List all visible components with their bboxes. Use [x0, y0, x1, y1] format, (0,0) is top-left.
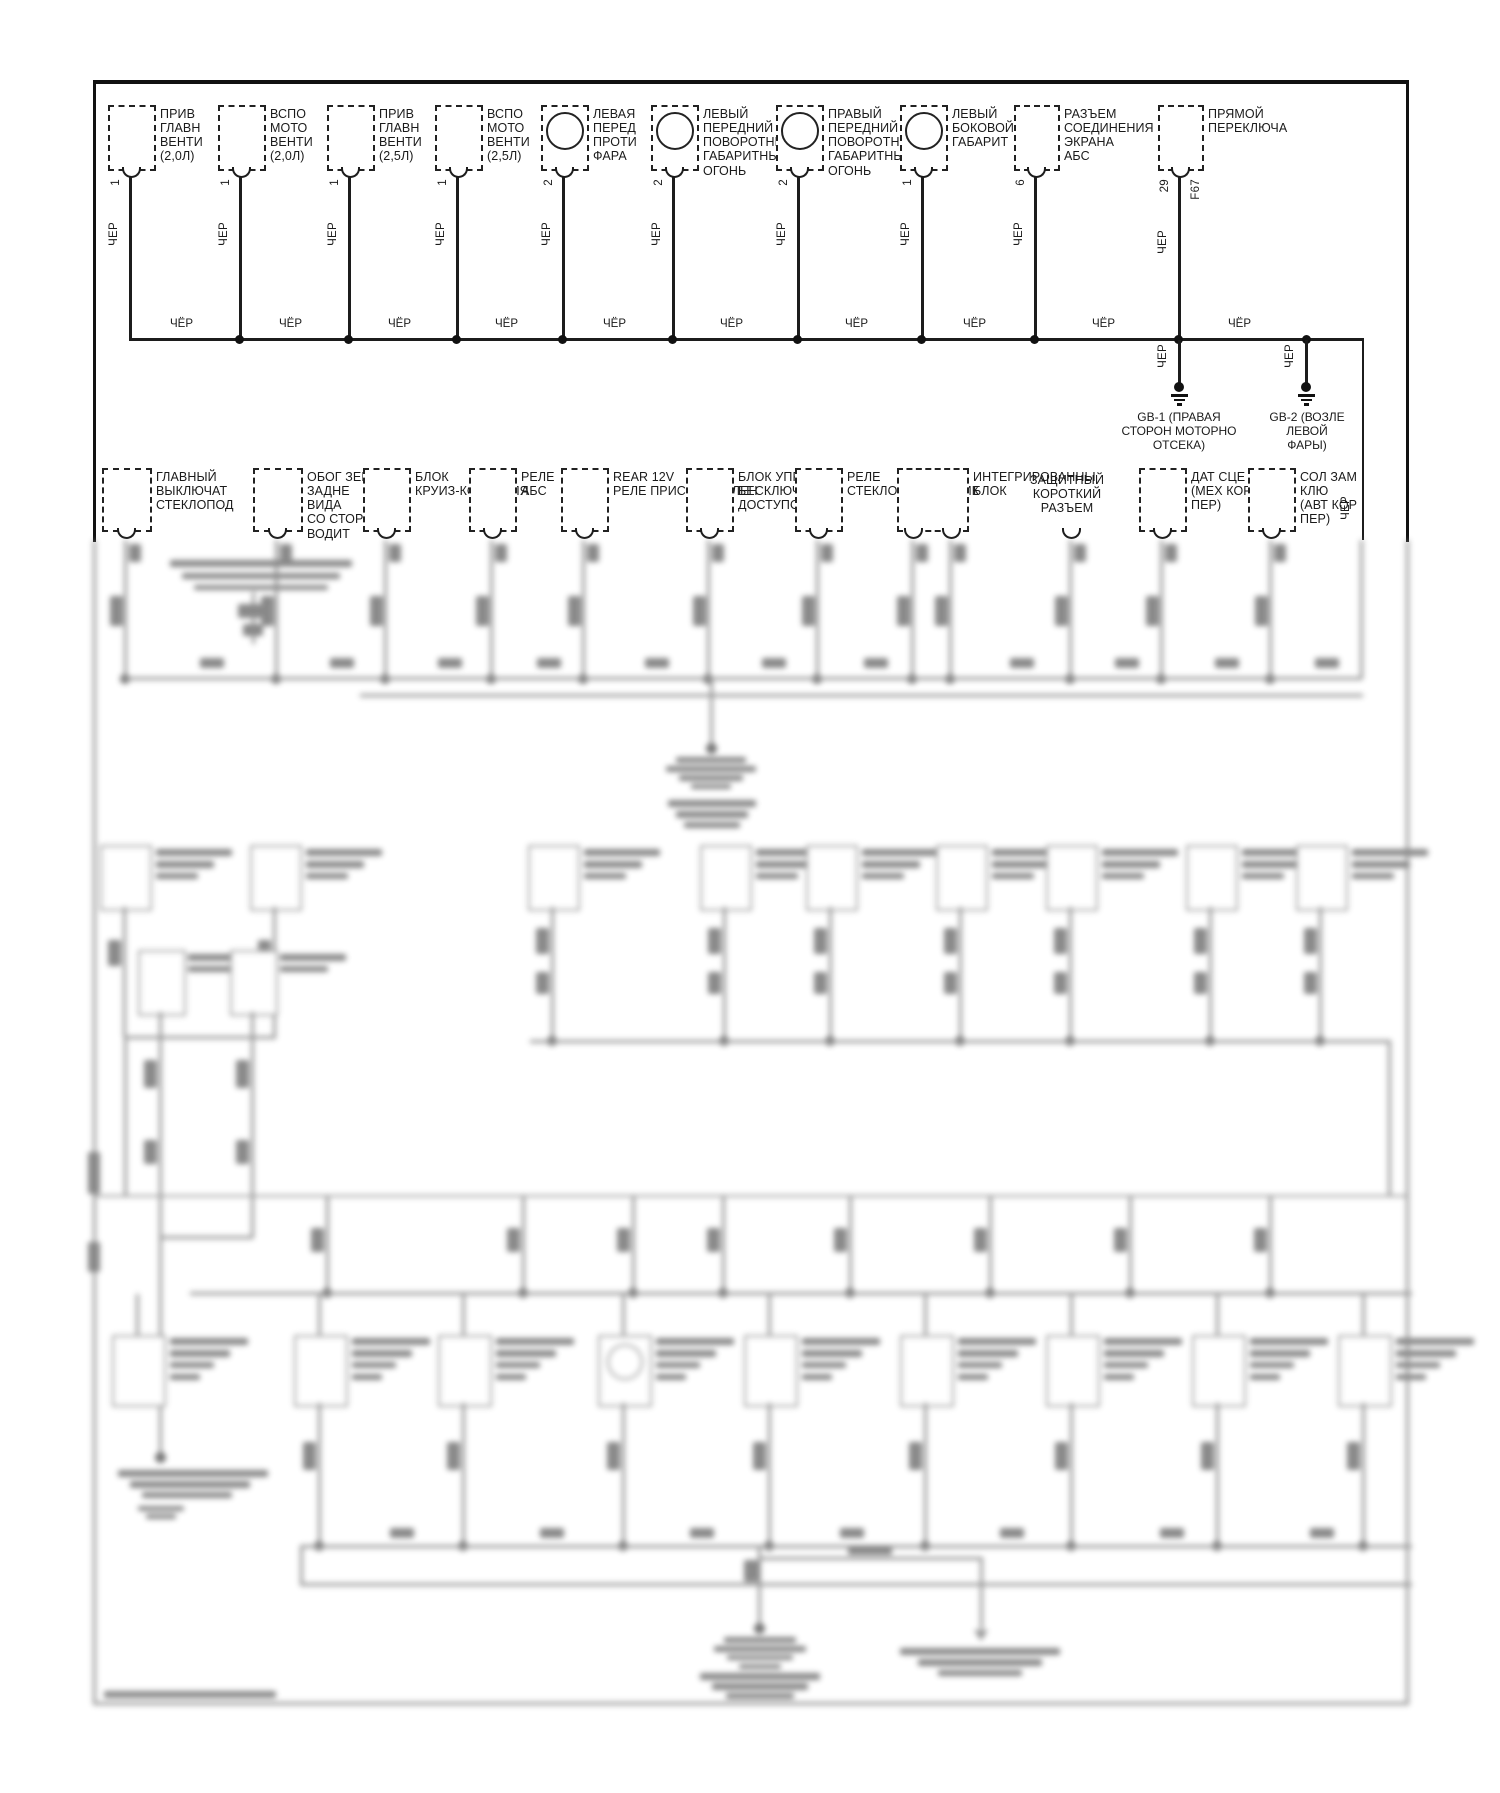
blurred-shape — [645, 658, 669, 668]
blurred-shape — [690, 1528, 714, 1538]
blurred-shape — [862, 861, 920, 868]
blurred-shape — [936, 845, 988, 911]
blurred-shape — [656, 1350, 716, 1357]
blurred-shape — [1194, 928, 1207, 954]
blurred-shape — [617, 1228, 630, 1252]
blurred-shape — [1104, 1374, 1134, 1380]
blurred-shape — [194, 585, 328, 590]
blurred-shape — [587, 544, 599, 562]
blurred-shape — [496, 1338, 574, 1345]
blurred-shape — [992, 861, 1050, 868]
blurred-shape — [144, 1060, 157, 1088]
blurred-shape — [1102, 849, 1178, 856]
blurred-shape — [462, 1403, 465, 1545]
blurred-shape — [723, 907, 726, 1040]
blurred-shape — [756, 873, 798, 879]
blurred-shape — [568, 596, 581, 626]
blurred-shape — [123, 907, 126, 1037]
blurred-shape — [656, 1362, 700, 1368]
blurred-shape — [490, 540, 493, 679]
blurred-shape — [1250, 1362, 1294, 1368]
blurred-shape — [300, 1583, 1412, 1586]
blurred-shape — [954, 544, 966, 562]
blurred-shape — [1315, 658, 1339, 668]
blurred-shape — [1146, 596, 1159, 626]
blurred-shape — [389, 544, 401, 562]
blurred-shape — [536, 972, 549, 994]
blurred-shape — [840, 1528, 864, 1538]
blurred-shape — [280, 966, 328, 972]
blurred-shape — [1055, 1442, 1068, 1470]
blurred-shape — [1396, 1362, 1440, 1368]
blurred-shape — [1216, 1294, 1219, 1335]
blurred-shape — [622, 1403, 625, 1545]
blurred-shape — [170, 560, 352, 567]
blurred-shape — [326, 1197, 329, 1293]
blurred-shape — [230, 950, 278, 1016]
blurred-shape — [1055, 596, 1068, 626]
blurred-shape — [684, 822, 740, 828]
blurred-shape — [712, 1683, 808, 1690]
blurred-shape — [1269, 1197, 1272, 1293]
blurred-shape — [959, 907, 962, 1040]
blurred-shape — [1074, 544, 1086, 562]
blurred-shape — [1250, 1350, 1310, 1357]
blurred-shape — [900, 1335, 954, 1407]
blurred-shape — [918, 1659, 1042, 1666]
blurred-shape — [944, 928, 957, 954]
blurred-shape — [1347, 1442, 1360, 1470]
blurred-shape — [666, 766, 756, 772]
blurred-shape — [727, 1655, 793, 1660]
blurred-shape — [1070, 1294, 1073, 1335]
blurred-shape — [1069, 907, 1072, 1040]
blurred-shape — [708, 972, 721, 994]
blurred-shape — [1010, 658, 1034, 668]
blurred-shape — [330, 658, 354, 668]
blurred-shape — [1186, 845, 1238, 911]
blurred-shape — [170, 1362, 214, 1368]
blurred-shape — [236, 1060, 249, 1088]
blurred-shape — [1388, 1040, 1391, 1197]
blurred-shape — [944, 972, 957, 994]
blurred-shape — [250, 845, 302, 911]
blurred-shape — [251, 1012, 254, 1238]
blurred-shape — [146, 1514, 176, 1519]
blurred-shape — [156, 873, 198, 879]
blurred-shape — [849, 1197, 852, 1293]
blurred-shape — [1069, 540, 1072, 679]
blurred-shape — [802, 596, 815, 626]
blurred-shape — [530, 1040, 1390, 1043]
blurred-shape — [706, 743, 717, 754]
blurred-shape — [802, 1338, 880, 1345]
blurred-shape — [1360, 540, 1363, 679]
blurred-shape — [1070, 1403, 1073, 1545]
blurred-shape — [958, 1350, 1018, 1357]
blurred-shape — [848, 1546, 892, 1555]
blurred-shape — [1054, 972, 1067, 994]
blurred-shape — [1304, 972, 1317, 994]
blurred-shape — [1362, 1403, 1365, 1545]
blurred-shape — [722, 1197, 725, 1293]
blurred-shape — [1352, 873, 1394, 879]
blurred-shape — [537, 658, 561, 668]
blurred-shape — [821, 544, 833, 562]
blurred-shape — [370, 596, 383, 626]
wiring-diagram-page: ПРИВ ГЛАВН ВЕНТИ (2,0Л) 1 ЧЁР ВСПО МОТО … — [0, 0, 1500, 1793]
blurred-shape — [1102, 873, 1144, 879]
blurred-shape — [768, 1403, 771, 1545]
blurred-shape — [712, 544, 724, 562]
blurred-shape — [632, 1197, 635, 1293]
blurred-shape — [138, 1506, 184, 1511]
blurred-shape — [679, 775, 743, 781]
blurred-shape — [294, 1335, 348, 1407]
blurred-shape — [540, 1528, 564, 1538]
blurred-shape — [1250, 1338, 1328, 1345]
blurred-shape — [710, 679, 713, 745]
blurred-shape — [1192, 1335, 1246, 1407]
blurred-shape — [862, 849, 938, 856]
blurred-shape — [691, 784, 731, 789]
blurred-shape — [897, 596, 910, 626]
blurred-shape — [707, 1228, 720, 1252]
blurred-shape — [252, 592, 255, 644]
blurred-shape — [924, 1403, 927, 1545]
blurred-shape — [708, 928, 721, 954]
blurred-shape — [170, 1374, 200, 1380]
blurred-shape — [438, 658, 462, 668]
blurred-shape — [724, 1637, 796, 1643]
blurred-shape — [318, 1294, 321, 1335]
blurred-shape — [1396, 1374, 1426, 1380]
blurred-shape — [656, 1374, 686, 1380]
blurred-shape — [911, 540, 914, 679]
blurred-shape — [93, 1195, 1407, 1197]
blurred-shape — [1209, 907, 1212, 1040]
blurred-shape — [462, 1294, 465, 1335]
blurred-shape — [1269, 540, 1272, 679]
blurred-shape — [753, 1442, 766, 1470]
blurred-shape — [1046, 1335, 1100, 1407]
blurred-shape — [1114, 1228, 1127, 1252]
blurred-shape — [155, 1452, 166, 1463]
blurred-shape — [584, 861, 642, 868]
blurred-shape — [754, 1623, 765, 1634]
blurred-shape — [200, 658, 224, 668]
blurred-shape — [762, 658, 786, 668]
blurred-shape — [182, 573, 340, 579]
blurred-shape — [159, 1236, 253, 1239]
blurred-shape — [1396, 1350, 1456, 1357]
blurred-shape — [1250, 1374, 1280, 1380]
blurred-shape — [916, 544, 928, 562]
blurred-shape — [384, 540, 387, 679]
blurred-shape — [584, 873, 626, 879]
blurred-shape — [1165, 544, 1177, 562]
blurred-shape — [958, 1374, 988, 1380]
blurred-shape — [318, 1403, 321, 1545]
blurred-shape — [814, 972, 827, 994]
blurred-shape — [693, 596, 706, 626]
blurred-shape — [118, 1470, 268, 1477]
blurred-shape — [138, 950, 186, 1016]
blurred-shape — [1201, 1442, 1214, 1470]
blurred-shape — [496, 1374, 526, 1380]
blurred-shape — [352, 1362, 396, 1368]
blurred-shape — [607, 1344, 643, 1380]
blurred-shape — [300, 1545, 303, 1585]
blurred-shape — [816, 540, 819, 679]
blurred-shape — [1274, 544, 1286, 562]
blurred-shape — [758, 1548, 761, 1626]
blurred-shape — [949, 540, 952, 679]
blurred-shape — [124, 1036, 127, 1196]
blurred-shape — [124, 677, 1362, 680]
blurred-shape — [1104, 1338, 1182, 1345]
blurred-shape — [108, 940, 121, 966]
blurred-shape — [1216, 1403, 1219, 1545]
blurred-shape — [110, 596, 123, 626]
blurred-shape — [1352, 849, 1428, 856]
blurred-shape — [1338, 1335, 1392, 1407]
blurred-shape — [390, 1528, 414, 1538]
blurred-shape — [476, 596, 489, 626]
blurred-shape — [306, 873, 348, 879]
blurred-shape — [170, 1350, 230, 1357]
blurred-shape — [1194, 972, 1207, 994]
blurred-shape — [834, 1228, 847, 1252]
blurred-shape — [144, 1140, 157, 1164]
blurred-shape — [352, 1338, 430, 1345]
blurred-shape — [124, 540, 127, 679]
blurred-shape — [100, 845, 152, 911]
blurred-shape — [170, 1338, 248, 1345]
blurred-shape — [656, 1338, 734, 1345]
blurred-shape — [802, 1374, 832, 1380]
blurred-shape — [156, 861, 214, 868]
blurred-shape — [88, 1242, 100, 1272]
blurred-shape — [1160, 1528, 1184, 1538]
blurred-shape — [93, 540, 96, 1705]
blurred-shape — [142, 1492, 232, 1498]
blurred-shape — [958, 1338, 1036, 1345]
blurred-shape — [238, 604, 266, 618]
blurred-shape — [507, 1228, 520, 1252]
blurred-shape — [438, 1335, 492, 1407]
blurred-shape — [352, 1350, 412, 1357]
blurred-shape — [551, 907, 554, 1040]
blurred-shape — [924, 1294, 927, 1335]
blurred-shape — [303, 1442, 316, 1470]
blurred-shape — [974, 1228, 987, 1252]
blurred-shape — [1129, 1197, 1132, 1293]
blurred-shape — [280, 954, 346, 961]
blurred-shape — [1296, 845, 1348, 911]
blurred-shape — [311, 1228, 324, 1252]
blurred-shape — [1215, 658, 1239, 668]
blurred-shape — [360, 694, 1363, 697]
blurred-shape — [829, 907, 832, 1040]
blurred-shape — [156, 849, 232, 856]
blurred-shape — [496, 1362, 540, 1368]
blurred-shape — [1046, 845, 1098, 911]
blurred-shape — [622, 1294, 625, 1335]
blurred-shape — [726, 1693, 794, 1699]
blurred-shape — [980, 1557, 983, 1629]
blurred-shape — [1054, 928, 1067, 954]
blurred-shape — [1352, 861, 1410, 868]
blurred-shape — [522, 1197, 525, 1293]
blurred-shape — [744, 1560, 758, 1582]
blurred-shape — [190, 1292, 1412, 1295]
blurred-shape — [862, 873, 904, 879]
blurred-shape — [768, 1294, 771, 1335]
blurred-shape — [676, 811, 748, 818]
blurred-shape — [136, 1294, 139, 1335]
blurred-shape — [236, 1140, 249, 1164]
blurred-shape — [130, 1481, 250, 1488]
blurred-shape — [582, 540, 585, 679]
blurred-shape — [992, 873, 1034, 879]
blurred-shape — [159, 1012, 162, 1238]
blurred-shape — [496, 1350, 556, 1357]
blurred-shape — [864, 658, 888, 668]
blurred-shape — [1319, 907, 1322, 1040]
blurred-shape — [1242, 861, 1300, 868]
blurred-shape — [243, 624, 263, 636]
blurred-shape — [495, 544, 507, 562]
blurred-shape — [536, 928, 549, 954]
blurred-shape — [1104, 1362, 1148, 1368]
blurred-shape — [1406, 540, 1409, 1705]
blurred-shape — [1362, 1294, 1365, 1335]
blurred-shape — [88, 1152, 100, 1194]
blurred-shape — [306, 849, 382, 856]
blurred-shape — [974, 1630, 988, 1641]
blurred-shape — [935, 596, 948, 626]
blurred-shape — [760, 1557, 982, 1560]
blurred-shape — [352, 1374, 382, 1380]
blurred-shape — [707, 540, 710, 679]
blurred-shape — [938, 1670, 1022, 1676]
blurred-shape — [93, 1702, 1409, 1705]
blurred-shape — [306, 861, 364, 868]
blurred-shape — [188, 966, 236, 972]
blurred-shape — [129, 544, 141, 562]
blurred-shape — [1160, 540, 1163, 679]
blurred-diagram-region — [0, 0, 1500, 1793]
blurred-shape — [1254, 1228, 1267, 1252]
blurred-shape — [1115, 658, 1139, 668]
blurred-shape — [676, 757, 746, 763]
blurred-shape — [1396, 1338, 1474, 1345]
blurred-shape — [909, 1442, 922, 1470]
blurred-shape — [739, 1664, 781, 1669]
blurred-shape — [802, 1362, 846, 1368]
blurred-shape — [806, 845, 858, 911]
blurred-shape — [958, 1362, 1002, 1368]
blurred-shape — [700, 845, 752, 911]
blurred-shape — [104, 1691, 276, 1698]
blurred-shape — [668, 800, 756, 807]
blurred-shape — [814, 928, 827, 954]
blurred-shape — [1242, 873, 1284, 879]
blurred-shape — [700, 1673, 820, 1680]
blurred-shape — [1255, 596, 1268, 626]
blurred-shape — [1000, 1528, 1024, 1538]
blurred-shape — [714, 1646, 806, 1652]
blurred-shape — [900, 1648, 1060, 1655]
blurred-shape — [607, 1442, 620, 1470]
blurred-shape — [744, 1335, 798, 1407]
blurred-shape — [112, 1335, 166, 1407]
blurred-shape — [447, 1442, 460, 1470]
blurred-shape — [1104, 1350, 1164, 1357]
blurred-shape — [989, 1197, 992, 1293]
blurred-shape — [528, 845, 580, 911]
blurred-shape — [584, 849, 660, 856]
blurred-shape — [1310, 1528, 1334, 1538]
blurred-shape — [1304, 928, 1317, 954]
blurred-shape — [802, 1350, 862, 1357]
blurred-shape — [1102, 861, 1160, 868]
